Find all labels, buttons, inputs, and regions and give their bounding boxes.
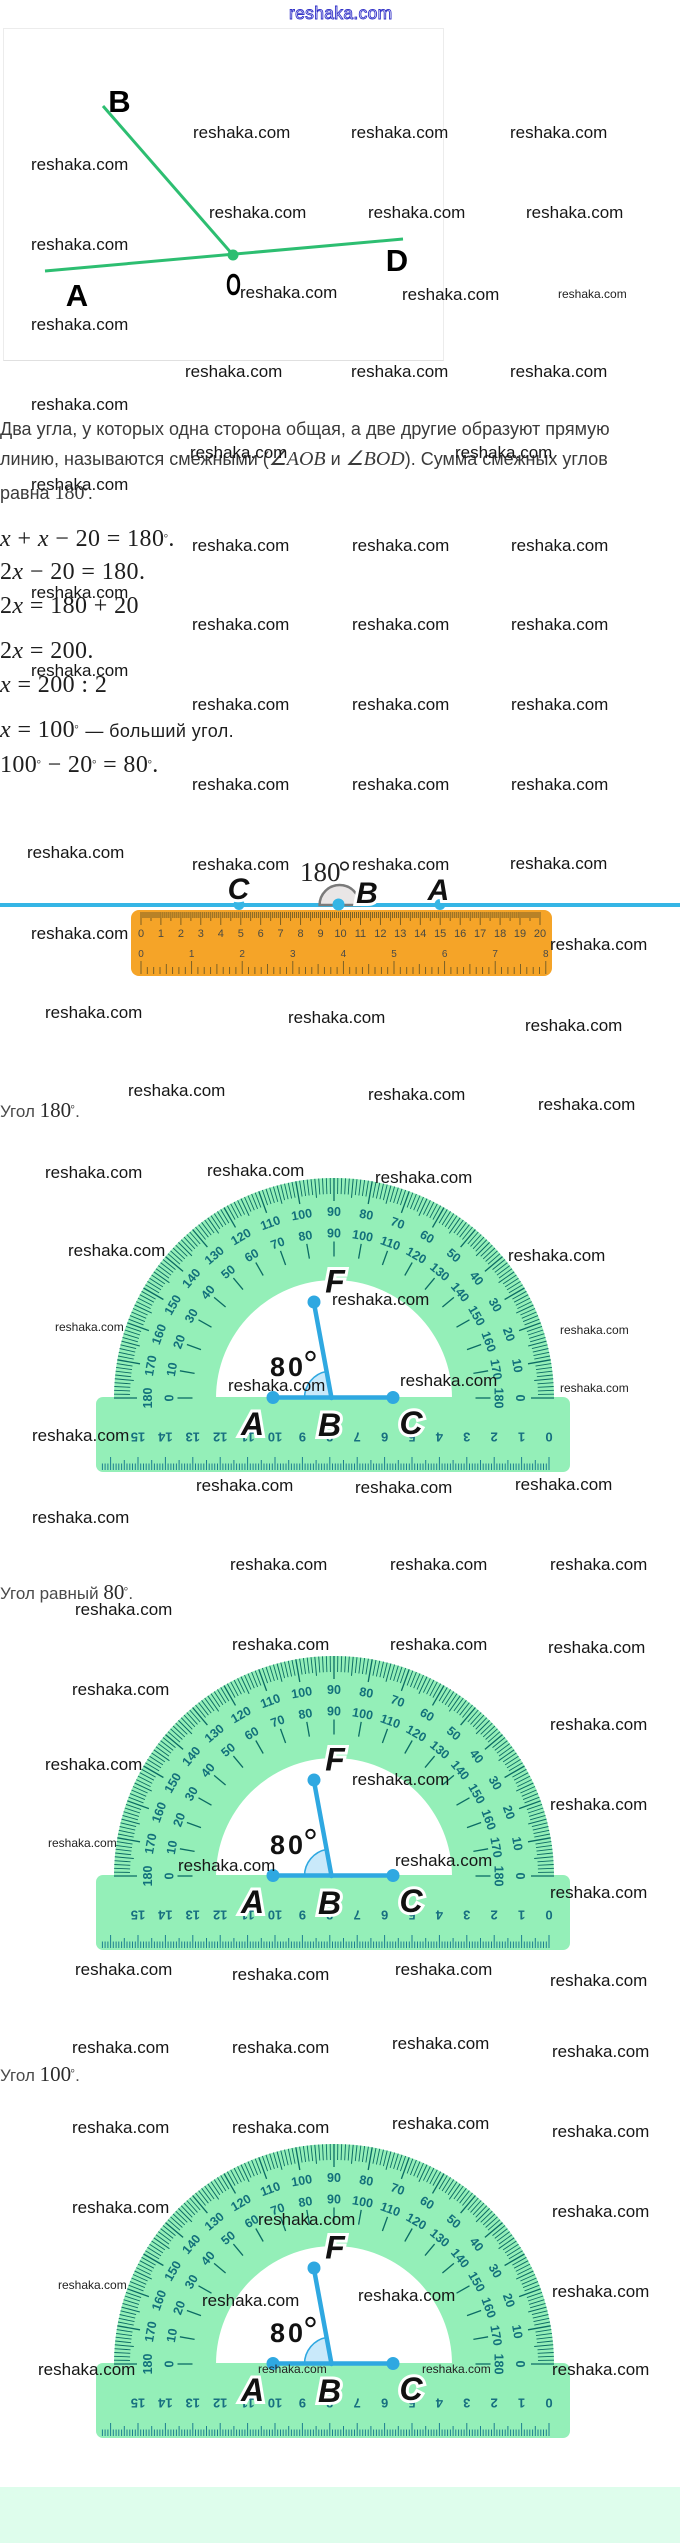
svg-text:180: 180: [300, 857, 341, 887]
svg-text:13: 13: [394, 928, 406, 940]
svg-text:0: 0: [138, 928, 144, 940]
svg-text:7: 7: [492, 949, 498, 960]
svg-text:15: 15: [434, 928, 446, 940]
svg-text:3: 3: [290, 949, 296, 960]
svg-text:5: 5: [238, 928, 244, 940]
svg-text:5: 5: [391, 949, 397, 960]
svg-text:4: 4: [341, 949, 347, 960]
svg-text:0: 0: [138, 949, 144, 960]
svg-text:9: 9: [317, 928, 323, 940]
svg-text:3: 3: [198, 928, 204, 940]
svg-text:8: 8: [543, 949, 549, 960]
svg-text:D: D: [386, 243, 408, 278]
svg-text:1: 1: [158, 928, 164, 940]
svg-text:A: A: [427, 874, 450, 907]
svg-text:1: 1: [189, 949, 195, 960]
svg-text:2: 2: [178, 928, 184, 940]
svg-text:B: B: [108, 84, 130, 119]
svg-text:16: 16: [454, 928, 466, 940]
svg-text:19: 19: [514, 928, 526, 940]
svg-text:O: O: [226, 267, 241, 302]
svg-text:12: 12: [374, 928, 386, 940]
svg-text:8: 8: [298, 928, 304, 940]
svg-text:11: 11: [355, 928, 366, 940]
svg-text:4: 4: [218, 928, 224, 940]
svg-text:10: 10: [334, 928, 346, 940]
svg-text:20: 20: [534, 928, 546, 940]
svg-text:18: 18: [494, 928, 506, 940]
svg-text:6: 6: [258, 928, 264, 940]
svg-text:17: 17: [474, 928, 486, 940]
svg-text:A: A: [66, 278, 88, 313]
svg-text:2: 2: [239, 949, 245, 960]
svg-text:7: 7: [278, 928, 284, 940]
svg-text:C: C: [228, 873, 251, 906]
svg-text:B: B: [356, 877, 378, 910]
svg-text:14: 14: [414, 928, 426, 940]
svg-text:6: 6: [442, 949, 448, 960]
